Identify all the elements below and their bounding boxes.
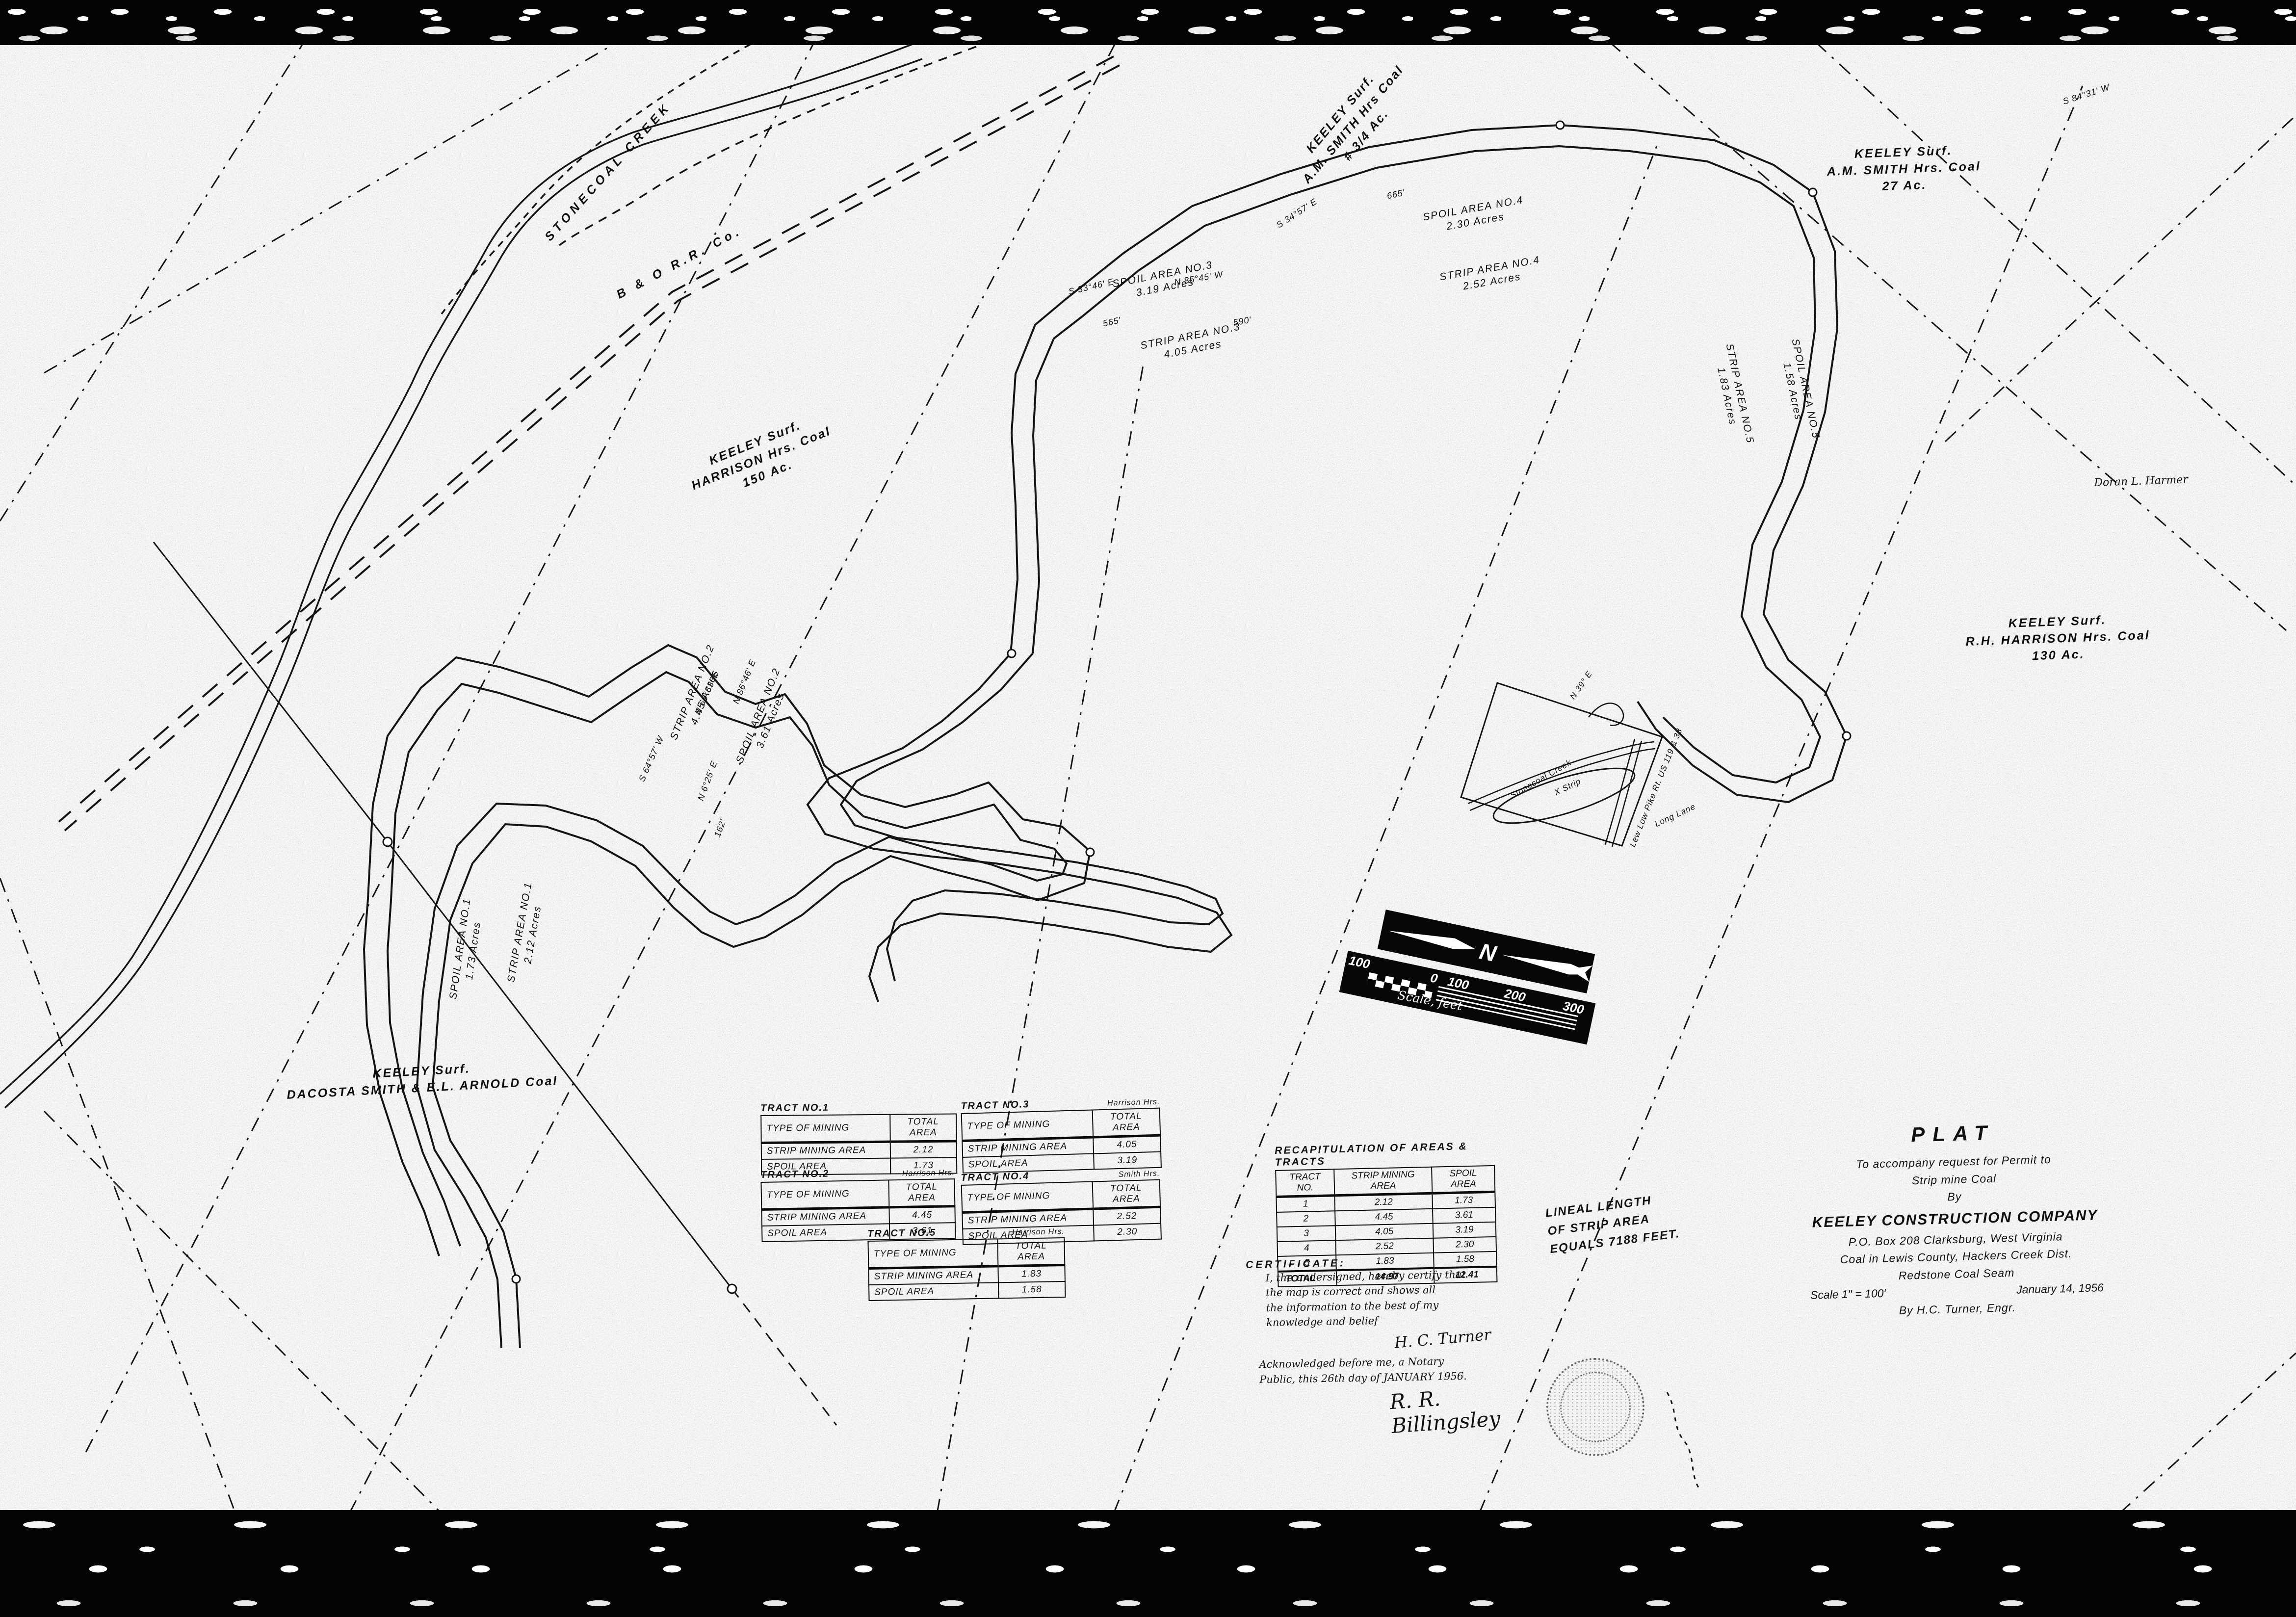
recap-cell: 1 bbox=[1276, 1195, 1335, 1212]
tract-owner-note: Harrison Hrs. bbox=[1107, 1098, 1160, 1108]
tract-col-header: TOTAL AREA bbox=[997, 1238, 1065, 1266]
tract-owner-note: Smith Hrs. bbox=[1118, 1170, 1160, 1179]
tract-area-value: 1.83 bbox=[998, 1265, 1065, 1282]
tract-col-header: TYPE OF MINING bbox=[868, 1239, 998, 1268]
tract-area-value: 2.12 bbox=[890, 1141, 957, 1158]
recap-cell: 4.45 bbox=[1335, 1208, 1433, 1226]
tract-area-value: 2.52 bbox=[1093, 1207, 1161, 1225]
tract-title: TRACT NO.5 bbox=[867, 1227, 936, 1240]
map-date: January 14, 1956 bbox=[2016, 1279, 2104, 1299]
recap-cell: 3 bbox=[1277, 1226, 1336, 1242]
recap-cell: 2.30 bbox=[1434, 1236, 1497, 1252]
tract-col-header: TOTAL AREA bbox=[888, 1179, 955, 1207]
tract-row-label: STRIP MINING AREA bbox=[868, 1266, 998, 1285]
tract-col-header: TYPE OF MINING bbox=[761, 1180, 889, 1209]
tract-area-value: 4.45 bbox=[889, 1206, 955, 1224]
tract-title: TRACT NO.4 bbox=[961, 1171, 1030, 1184]
tract-col-header: TYPE OF MINING bbox=[761, 1115, 890, 1143]
tract-col-header: TYPE OF MINING bbox=[962, 1182, 1093, 1213]
tract-col-header: TYPE OF MINING bbox=[962, 1110, 1093, 1141]
tract-area-value: 3.19 bbox=[1094, 1152, 1161, 1170]
engineer-signature: H. C. Turner bbox=[1394, 1324, 1513, 1352]
film-sprocket-strip-top bbox=[0, 0, 2296, 45]
plat-map-drawing bbox=[0, 0, 2296, 1617]
recap-cell: 4.05 bbox=[1335, 1223, 1434, 1240]
owner-keeley-rh-harrison-130: KEELEY Surf.R.H. HARRISON Hrs. Coal130 A… bbox=[1965, 611, 2151, 667]
recap-cell: 3.19 bbox=[1433, 1222, 1496, 1238]
tract-owner-note: Harrison Hrs. bbox=[1012, 1227, 1065, 1237]
recap-col-header: STRIP MINING AREA bbox=[1334, 1167, 1432, 1196]
recap-cell: 3.61 bbox=[1433, 1207, 1496, 1224]
tract-row-label: SPOIL AREA bbox=[869, 1282, 999, 1301]
tract-table-1: TRACT NO.1TYPE OF MININGTOTAL AREASTRIP … bbox=[760, 1101, 957, 1175]
tract-area-value: 1.58 bbox=[998, 1281, 1066, 1298]
scale-tick: 100 bbox=[1347, 953, 1371, 972]
recap-title: RECAPITULATION OF AREAS & TRACTS bbox=[1275, 1140, 1495, 1169]
recap-col-header: SPOIL AREA bbox=[1432, 1166, 1495, 1193]
recap-cell: 1.73 bbox=[1432, 1192, 1495, 1208]
recap-col-header: TRACT NO. bbox=[1276, 1169, 1334, 1197]
tract-col-header: TOTAL AREA bbox=[1092, 1180, 1160, 1209]
map-scale: Scale 1" = 100' bbox=[1810, 1285, 1886, 1304]
tract-row-label: STRIP MINING AREA bbox=[761, 1142, 890, 1159]
owner-keeley-am-smith-27: KEELEY Surf.A.M. SMITH Hrs. Coal27 Ac. bbox=[1826, 142, 1982, 197]
north-letter: N bbox=[1477, 938, 1499, 966]
title-block: PLAT To accompany request for Permit to … bbox=[1803, 1114, 2107, 1322]
scanned-plat-page: WVDM 30X 369339 STONECOAL CREEKB & O R.R… bbox=[0, 0, 2296, 1617]
tract-area-value: 2.30 bbox=[1094, 1224, 1161, 1241]
tract-table-3: TRACT NO.3Harrison Hrs.TYPE OF MININGTOT… bbox=[961, 1095, 1162, 1174]
certificate-block: CERTIFICATE: I, the undersigned, hereby … bbox=[1246, 1254, 1513, 1437]
recap-cell: 2.12 bbox=[1334, 1193, 1433, 1211]
tract-title: TRACT NO.2 bbox=[760, 1169, 829, 1181]
tract-col-header: TOTAL AREA bbox=[890, 1114, 957, 1142]
film-sprocket-strip-bottom: WVDM 30X 369339 bbox=[0, 1510, 2296, 1617]
tract-area-value: 4.05 bbox=[1093, 1135, 1161, 1153]
tract-row-label: STRIP MINING AREA bbox=[761, 1207, 889, 1226]
tract-owner-note: Harrison Hrs. bbox=[902, 1169, 955, 1178]
tract-title: TRACT NO.3 bbox=[961, 1099, 1030, 1112]
tract-col-header: TOTAL AREA bbox=[1092, 1108, 1160, 1137]
recap-cell: 4 bbox=[1277, 1240, 1336, 1256]
tract-title: TRACT NO.1 bbox=[760, 1102, 829, 1114]
recap-cell: 2.52 bbox=[1336, 1238, 1434, 1255]
notary-seal bbox=[1546, 1358, 1644, 1456]
recap-cell: 2 bbox=[1277, 1211, 1335, 1227]
scale-tick: 0 bbox=[1429, 970, 1439, 986]
tract-table-5: TRACT NO.5Harrison Hrs.TYPE OF MININGTOT… bbox=[867, 1225, 1066, 1301]
notary-signature: R. R. Billingsley bbox=[1389, 1382, 1514, 1438]
